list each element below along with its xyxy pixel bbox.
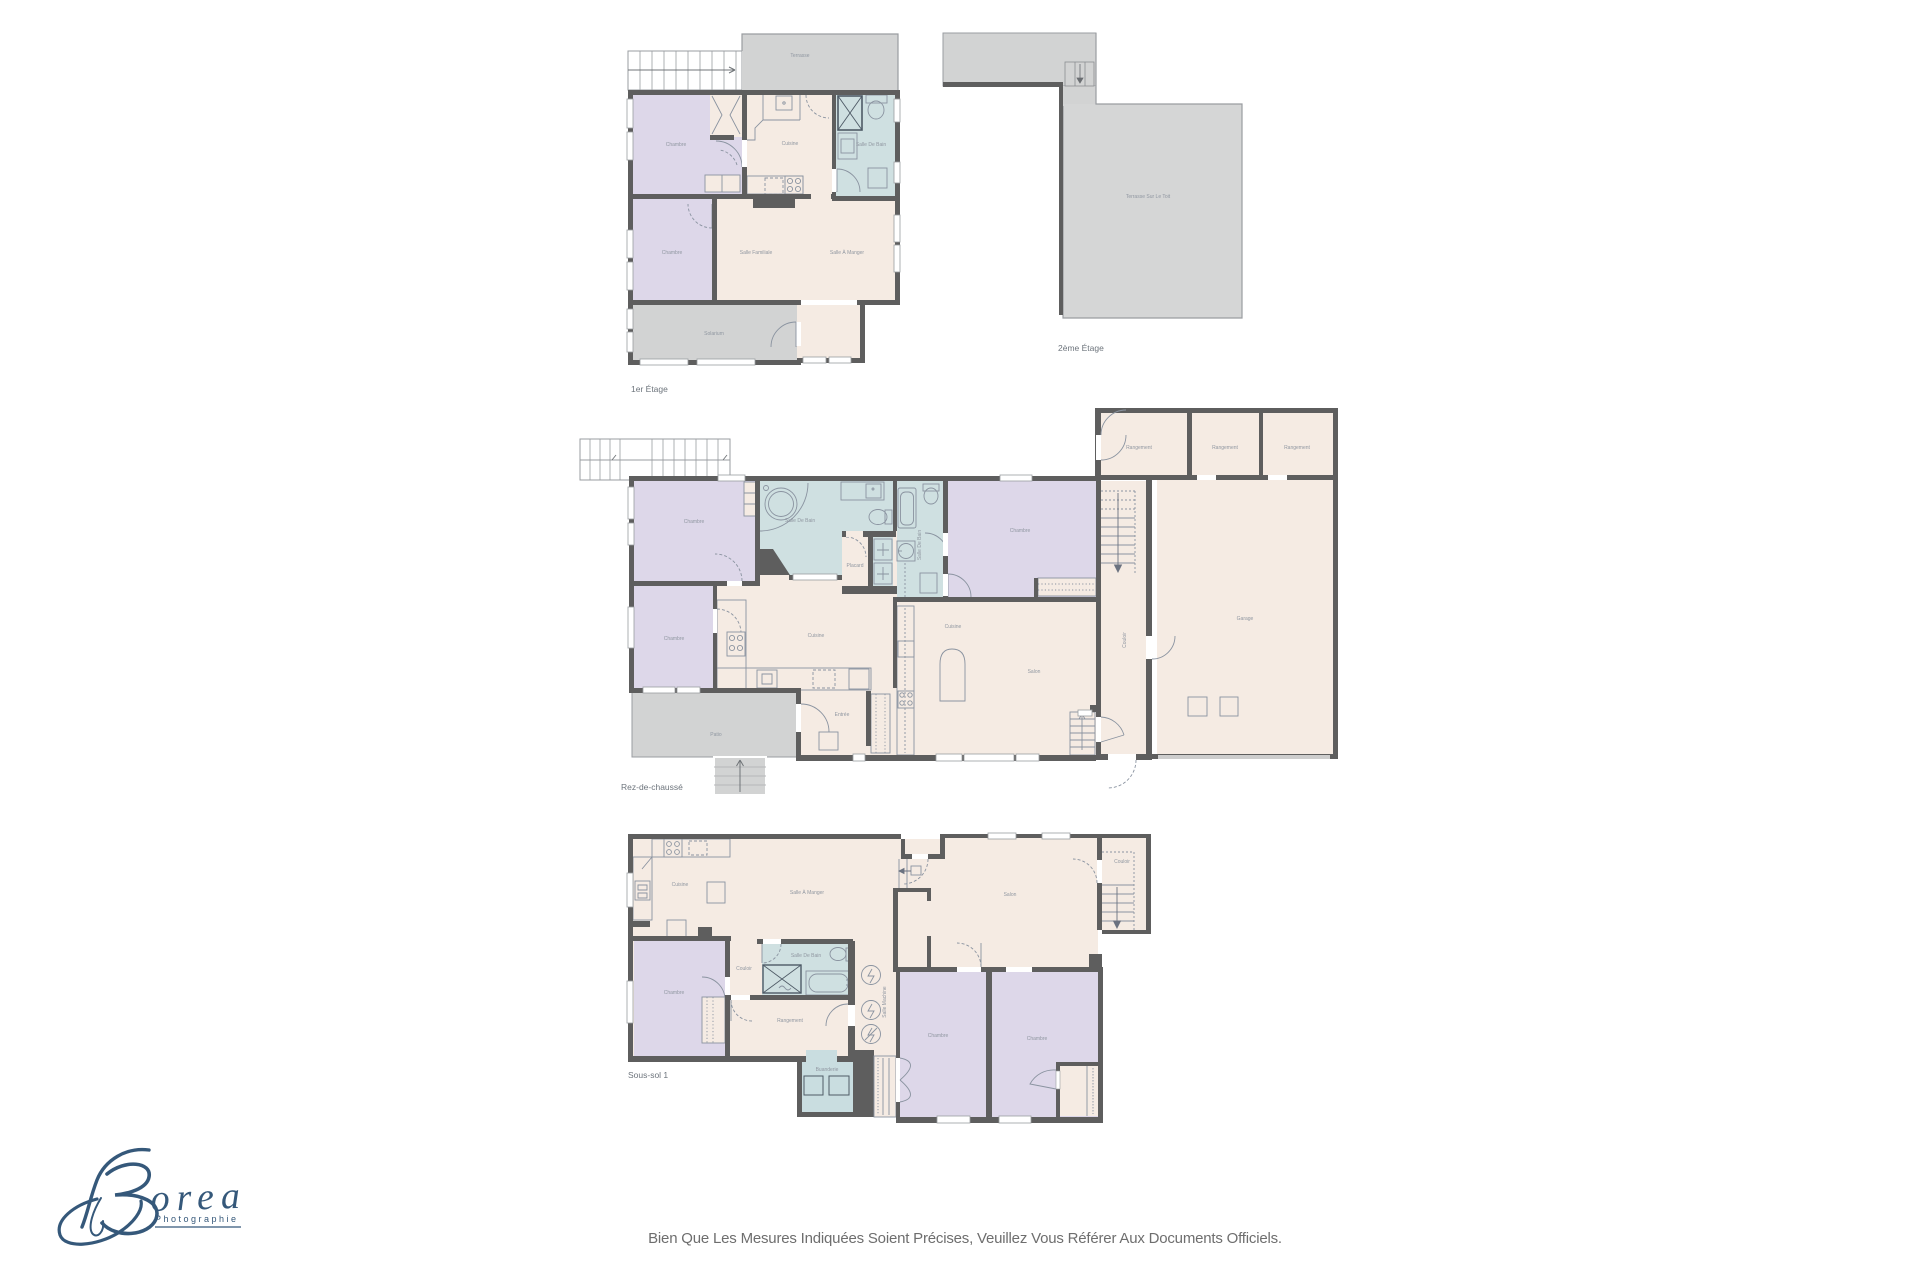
svg-text:Chambre: Chambre bbox=[662, 250, 683, 256]
svg-text:Salle Machine: Salle Machine bbox=[882, 986, 888, 1018]
svg-text:Chambre: Chambre bbox=[928, 1033, 949, 1039]
svg-text:Salle À Manger: Salle À Manger bbox=[790, 889, 825, 896]
svg-text:1er Étage: 1er Étage bbox=[631, 384, 668, 394]
svg-text:Rangement: Rangement bbox=[1126, 445, 1152, 451]
svg-text:Salon: Salon bbox=[1004, 892, 1017, 898]
svg-text:Photographie: Photographie bbox=[155, 1214, 239, 1224]
svg-text:Buanderie: Buanderie bbox=[816, 1067, 839, 1073]
svg-text:Couloir: Couloir bbox=[736, 966, 752, 972]
svg-text:Salle À Manger: Salle À Manger bbox=[830, 249, 865, 256]
svg-text:Garage: Garage bbox=[1237, 616, 1254, 622]
svg-text:Rangement: Rangement bbox=[1284, 445, 1310, 451]
svg-text:Solarium: Solarium bbox=[704, 331, 724, 337]
svg-text:Cuisine: Cuisine bbox=[782, 141, 799, 147]
svg-text:Placard: Placard bbox=[847, 563, 864, 569]
svg-text:Rangement: Rangement bbox=[777, 1018, 803, 1024]
svg-text:Bien Que Les Mesures Indiquées: Bien Que Les Mesures Indiquées Soient Pr… bbox=[648, 1230, 1282, 1247]
svg-text:Chambre: Chambre bbox=[684, 519, 705, 525]
svg-text:Cuisine: Cuisine bbox=[945, 624, 962, 630]
svg-text:Chambre: Chambre bbox=[1027, 1036, 1048, 1042]
svg-text:Chambre: Chambre bbox=[664, 636, 685, 642]
svg-text:Rangement: Rangement bbox=[1212, 445, 1238, 451]
svg-text:Salon: Salon bbox=[1028, 669, 1041, 675]
svg-text:Chambre: Chambre bbox=[664, 990, 685, 996]
svg-text:Terrasse: Terrasse bbox=[790, 53, 809, 59]
svg-text:Chambre: Chambre bbox=[1010, 528, 1031, 534]
svg-text:Salle De Bain: Salle De Bain bbox=[785, 518, 816, 524]
svg-text:Salle De Bain: Salle De Bain bbox=[856, 142, 887, 148]
svg-text:Terrasse Sur Le Toit: Terrasse Sur Le Toit bbox=[1126, 194, 1171, 200]
svg-text:Rez-de-chaussé: Rez-de-chaussé bbox=[621, 782, 683, 792]
svg-text:Cuisine: Cuisine bbox=[672, 882, 689, 888]
svg-text:2ème Étage: 2ème Étage bbox=[1058, 343, 1104, 353]
svg-text:Cuisine: Cuisine bbox=[808, 633, 825, 639]
svg-text:Salle De Bain: Salle De Bain bbox=[917, 530, 923, 561]
svg-text:Chambre: Chambre bbox=[666, 142, 687, 148]
svg-text:Salle De Bain: Salle De Bain bbox=[791, 953, 822, 959]
svg-text:Couloir: Couloir bbox=[1122, 632, 1128, 648]
svg-text:Salle Familiale: Salle Familiale bbox=[740, 250, 773, 256]
svg-text:Sous-sol 1: Sous-sol 1 bbox=[628, 1070, 668, 1080]
svg-text:Patio: Patio bbox=[710, 732, 722, 738]
svg-text:Couloir: Couloir bbox=[1114, 859, 1130, 865]
svg-text:Entrée: Entrée bbox=[835, 712, 850, 718]
